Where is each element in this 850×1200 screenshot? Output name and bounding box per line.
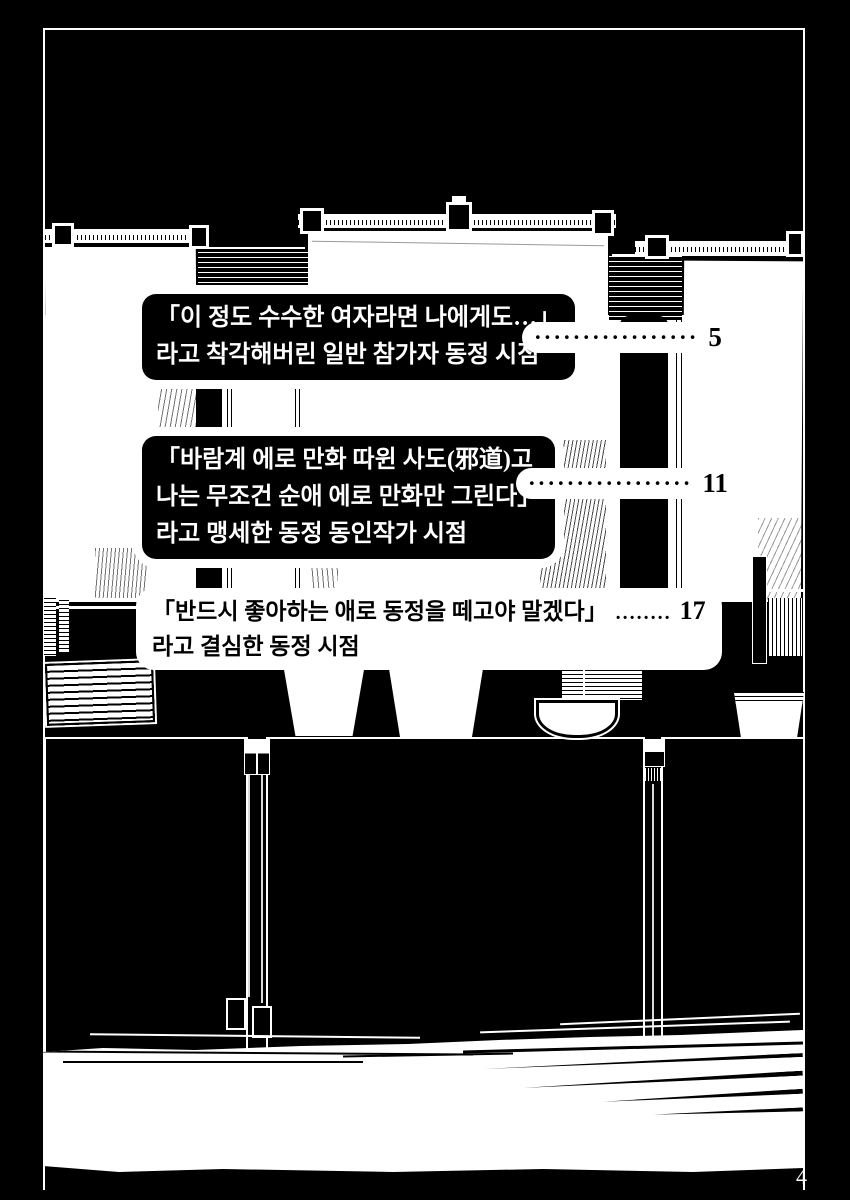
toc-entry-2-page-number: 11 xyxy=(702,470,728,497)
toc-entry-2-line1: 「바람계 에로 만화 따윈 사도(邪道)고 xyxy=(156,442,541,479)
folio-page-number: 4 xyxy=(796,1164,807,1190)
pillar-right xyxy=(620,316,668,600)
speed-lines-gap-right xyxy=(609,256,682,320)
toc-entry-1-page-number: 5 xyxy=(708,324,722,351)
toc-entry-1-line1: 「이 정도 수수한 여자라면 나에게도…」 xyxy=(156,300,561,337)
floor-streak xyxy=(463,1042,803,1054)
strap-line xyxy=(261,775,263,1003)
rail-clamp xyxy=(300,208,324,234)
strap-clip xyxy=(257,739,270,775)
hatch-box-left xyxy=(59,600,69,652)
comic-page: 「이 정도 수수한 여자라면 나에게도…」 라고 착각해버린 일반 참가자 동정… xyxy=(0,0,850,1200)
rail-clamp xyxy=(645,235,669,259)
toc-entry-2-pagelink: ················· 11 xyxy=(516,468,740,499)
hatch-box-right xyxy=(768,598,802,656)
rail-clamp xyxy=(446,202,472,232)
strap-clip xyxy=(644,739,665,767)
toc-entry-1-line2: 라고 착각해버린 일반 참가자 동정 시점 xyxy=(156,337,561,374)
foreground-counter-center xyxy=(266,737,645,1052)
strap-clip-teeth xyxy=(645,768,661,781)
foreground-counter-right xyxy=(661,737,805,1052)
toc-entry-3-line1: 「반드시 좋아하는 애로 동정을 떼고야 말겠다」 xyxy=(152,595,608,629)
floor-surface xyxy=(43,1030,803,1178)
toc-entry-3: 「반드시 좋아하는 애로 동정을 떼고야 말겠다」 ........ 17 라고… xyxy=(136,588,722,670)
toc-entry-2-line3: 라고 맹세한 동정 동인작가 시점 xyxy=(156,516,541,553)
strap-line xyxy=(248,775,250,997)
rail-clamp xyxy=(786,231,804,257)
wall-seam xyxy=(676,320,677,600)
toc-entry-2: 「바람계 에로 만화 따윈 사도(邪道)고 나는 무조건 순애 에로 만화만 그… xyxy=(142,436,555,559)
floor-streak xyxy=(653,1107,803,1116)
floor-streak xyxy=(63,1061,363,1063)
toc-entry-1-pagelink: ················· 5 xyxy=(522,322,734,353)
toc-entry-3-page-number: 17 xyxy=(680,594,706,628)
support-post xyxy=(752,556,767,664)
rail-clamp-knob xyxy=(452,196,466,204)
hatch-box-left xyxy=(44,598,56,656)
display-board xyxy=(45,660,155,726)
foreground-counter-left xyxy=(44,737,248,1052)
toc-entry-1-leader-dots: ················· xyxy=(534,326,698,349)
strap-end xyxy=(226,998,246,1030)
toc-entry-3-line2: 라고 결심한 동정 시점 xyxy=(152,630,706,664)
rail-clamp xyxy=(189,225,209,249)
toc-entry-2-line2: 나는 무조건 순애 에로 만화만 그린다」 xyxy=(156,479,541,516)
rail-underline xyxy=(43,247,305,249)
rail-underline xyxy=(612,254,803,256)
strap-line xyxy=(652,784,654,1046)
strap-clip xyxy=(244,739,257,775)
exhibit-table xyxy=(734,692,804,738)
wall-seam xyxy=(681,320,682,600)
toc-entry-3-leader-dots: ........ xyxy=(616,596,672,630)
floor-streak xyxy=(603,1089,803,1104)
toc-entry-2-leader-dots: ················· xyxy=(528,472,692,495)
toc-entry-1: 「이 정도 수수한 여자라면 나에게도…」 라고 착각해버린 일반 참가자 동정… xyxy=(142,294,575,380)
floor xyxy=(43,1030,803,1178)
floor-streak xyxy=(523,1071,803,1091)
rail-clamp xyxy=(52,223,74,247)
floor-streak xyxy=(483,1053,803,1071)
rail-clamp xyxy=(592,210,614,236)
hatch-shading xyxy=(95,548,147,598)
